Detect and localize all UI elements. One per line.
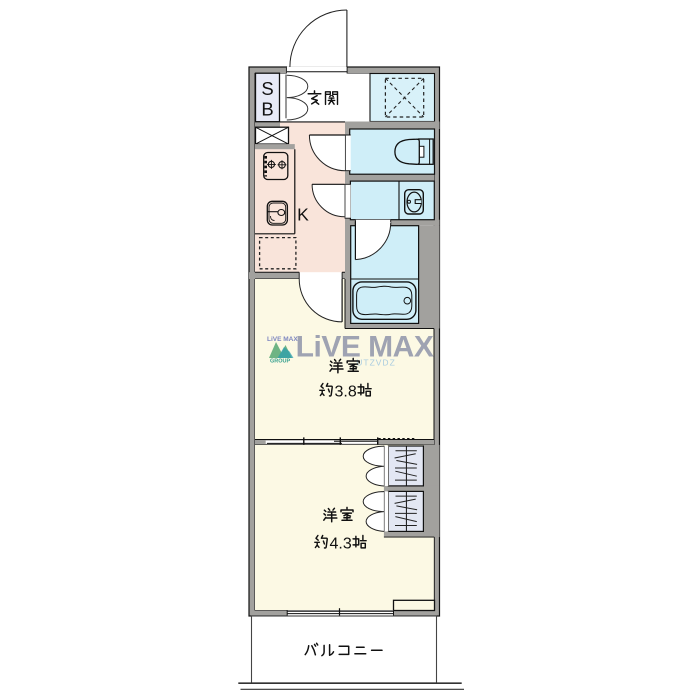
svg-text:K: K (297, 205, 309, 225)
svg-text:GROUP: GROUP (270, 359, 291, 365)
svg-text:UTZVDZ: UTZVDZ (356, 358, 396, 368)
svg-text:3.8: 3.8 (335, 384, 357, 401)
svg-text:B: B (261, 99, 273, 120)
svg-text:4.3: 4.3 (330, 536, 352, 553)
svg-text:LiVE MAX: LiVE MAX (267, 336, 298, 343)
svg-text:S: S (261, 78, 273, 99)
